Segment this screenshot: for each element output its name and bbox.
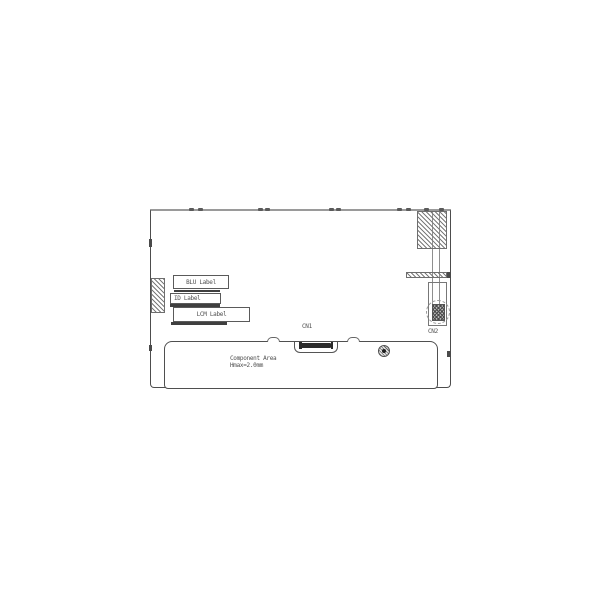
lcm-label-box: LCM Label: [173, 307, 250, 322]
blu-label-box: BLU Label: [173, 275, 229, 289]
edge-tick: [198, 208, 203, 211]
cable-bump: [347, 337, 360, 343]
edge-tick: [265, 208, 270, 211]
cn1-connector-contact: [301, 343, 331, 348]
cn1-connector-pin: [299, 342, 302, 349]
lcm-label-text: LCM Label: [197, 311, 227, 318]
cn1-connector-pin: [331, 342, 334, 349]
edge-tick: [406, 208, 411, 211]
edge-tick: [149, 239, 152, 247]
edge-tick: [258, 208, 263, 211]
cn2-label: CN2: [428, 328, 438, 335]
component-area-note-line1: Component Area: [230, 355, 276, 362]
edge-tick: [447, 351, 451, 357]
cn2-detail-circle: [426, 300, 450, 324]
blu-label-text: BLU Label: [186, 279, 216, 286]
edge-tick: [336, 208, 341, 211]
right-tape-hatch: [406, 272, 447, 278]
id-label-box: ID Label: [170, 293, 221, 304]
cable-bump: [267, 337, 280, 343]
left-mount-hatch: [151, 278, 165, 313]
edge-tick: [329, 208, 334, 211]
edge-tick: [397, 208, 402, 211]
lcm-label-edge: [171, 322, 227, 325]
edge-tick: [149, 345, 152, 351]
edge-tick: [447, 272, 451, 278]
component-area-note-line2: Hmax=2.0mm: [230, 362, 276, 369]
top-right-mount-hatch: [417, 211, 447, 249]
component-area-note: Component Area Hmax=2.0mm: [230, 355, 276, 369]
id-label-text: ID Label: [174, 295, 201, 302]
lcd-module-drawing: CN2 BLU Label ID Label LCM Label CN1 Com…: [0, 0, 600, 600]
cn1-label: CN1: [302, 323, 312, 330]
edge-tick: [189, 208, 194, 211]
